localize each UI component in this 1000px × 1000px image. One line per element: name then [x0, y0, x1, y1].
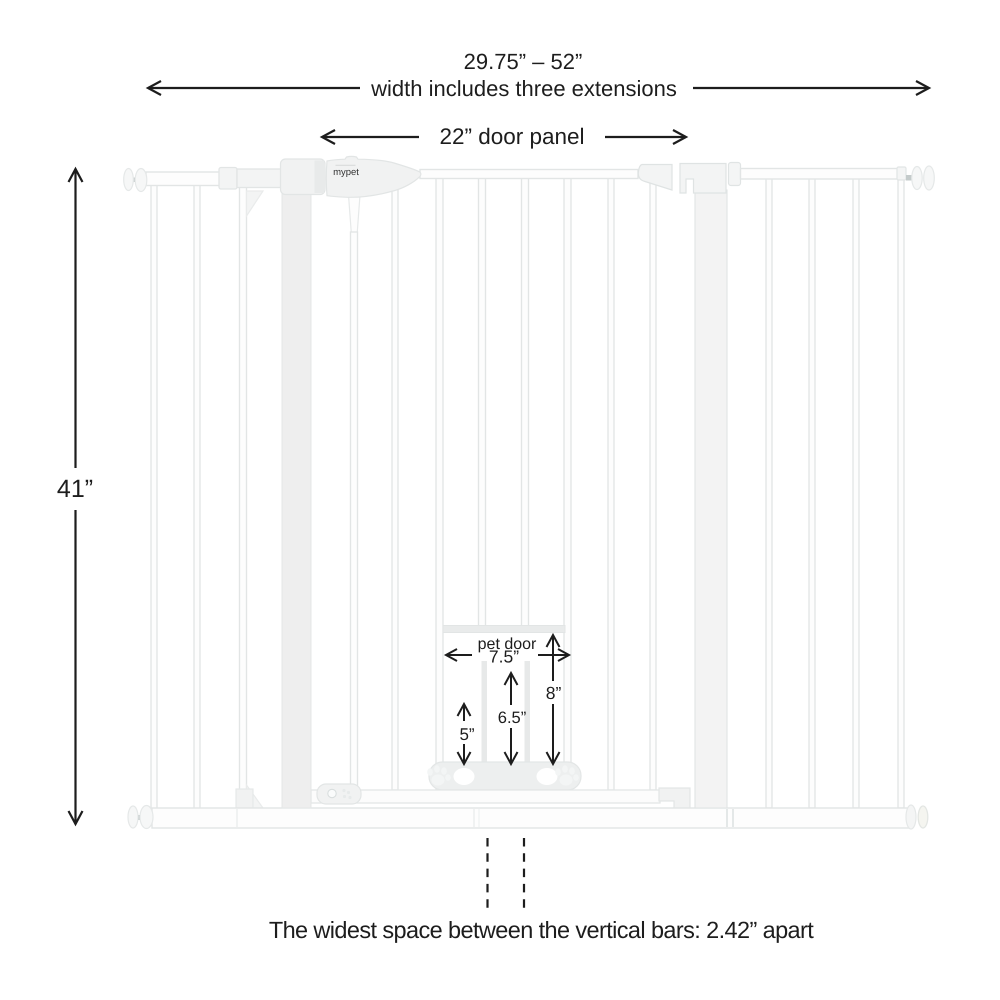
svg-text:7.5”: 7.5”: [489, 647, 519, 667]
svg-text:22” door panel: 22” door panel: [439, 124, 584, 149]
svg-text:8”: 8”: [546, 683, 562, 703]
svg-text:The widest space between the v: The widest space between the vertical ba…: [269, 917, 814, 943]
svg-text:mypet: mypet: [333, 167, 359, 178]
svg-text:29.75” – 52”: 29.75” – 52”: [464, 49, 583, 74]
svg-text:5”: 5”: [459, 725, 474, 744]
svg-text:6.5”: 6.5”: [498, 709, 526, 727]
svg-text:41”: 41”: [57, 475, 93, 503]
svg-text:width includes three extension: width includes three extensions: [370, 76, 677, 101]
